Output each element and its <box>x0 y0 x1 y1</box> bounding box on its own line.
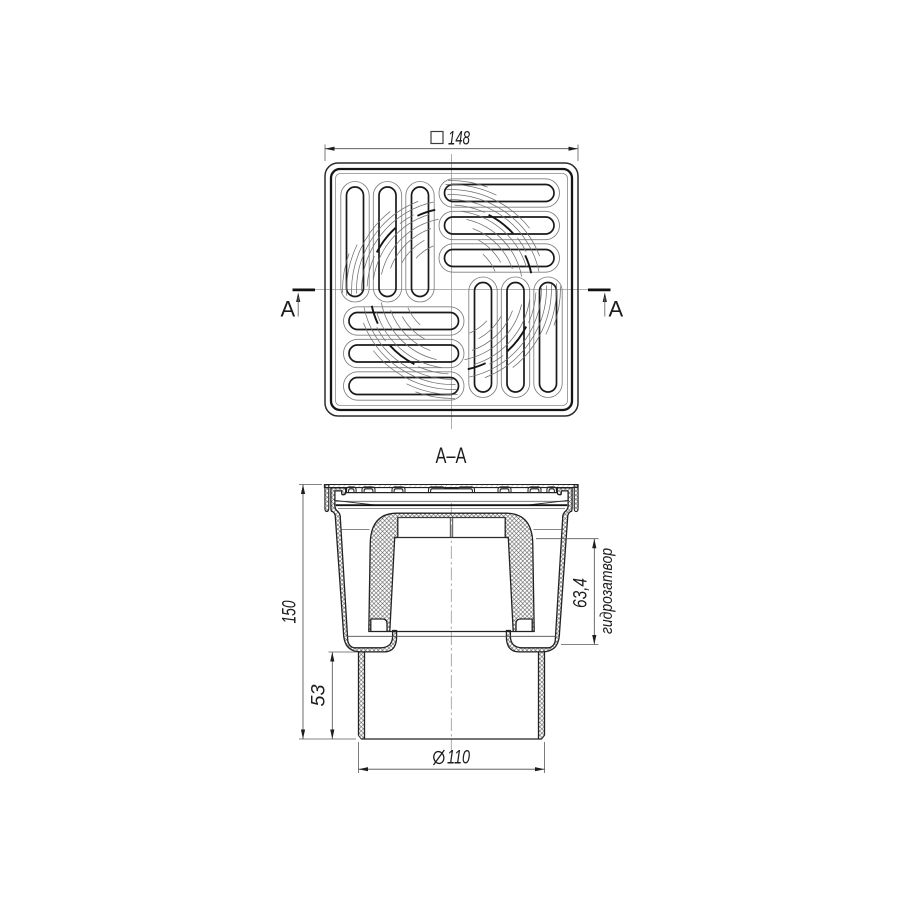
svg-text:150: 150 <box>280 600 301 623</box>
svg-text:A: A <box>609 297 624 322</box>
svg-text:110: 110 <box>447 748 470 769</box>
svg-text:148: 148 <box>448 129 470 150</box>
svg-text:A–A: A–A <box>436 443 467 468</box>
svg-text:63,4: 63,4 <box>571 578 592 608</box>
svg-text:гидрозатвор: гидрозатвор <box>598 548 616 634</box>
svg-text:53: 53 <box>309 684 330 706</box>
svg-text:A: A <box>281 297 296 322</box>
